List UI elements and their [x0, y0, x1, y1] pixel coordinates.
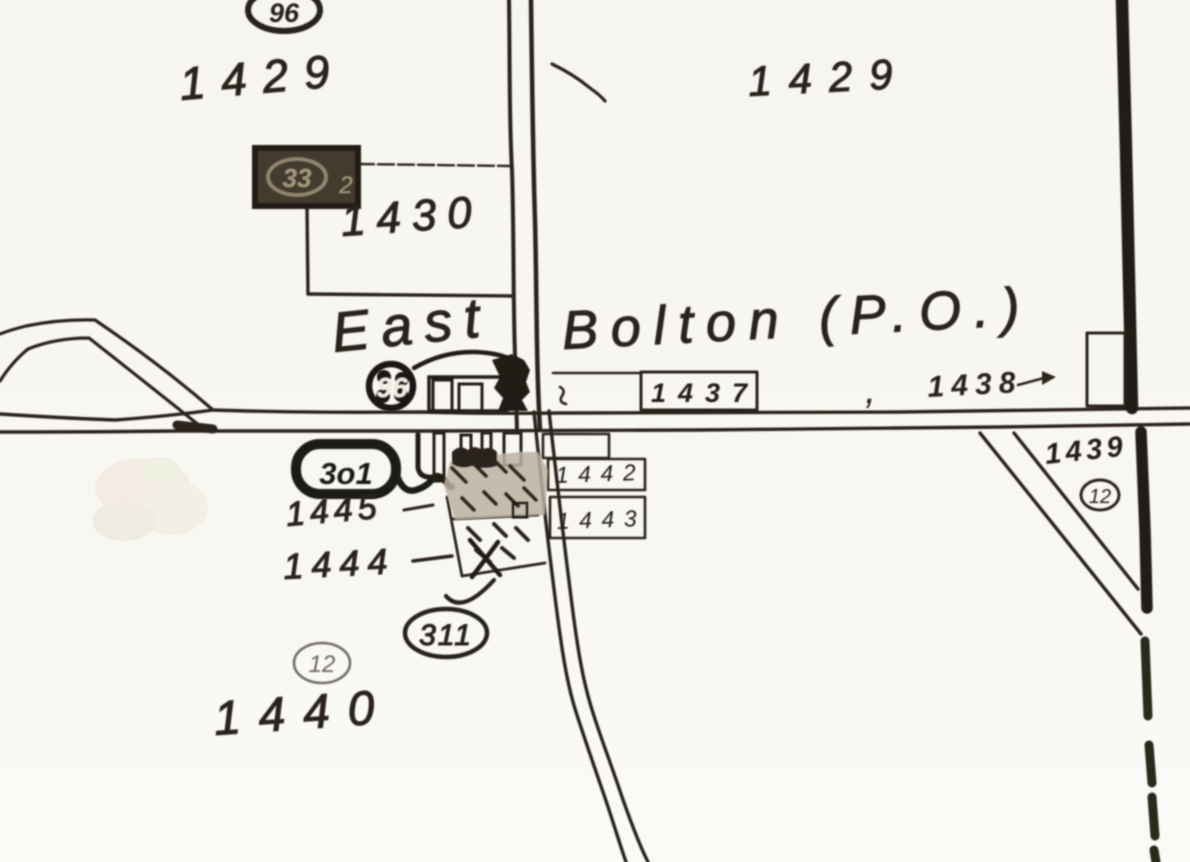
svg-text:1429: 1429 — [747, 50, 911, 105]
svg-text:1430: 1430 — [339, 187, 484, 246]
svg-text:,: , — [865, 368, 876, 412]
svg-text:96: 96 — [376, 372, 408, 403]
svg-text:12: 12 — [1089, 486, 1111, 508]
svg-text:33: 33 — [283, 163, 312, 193]
svg-text:2: 2 — [338, 172, 352, 199]
svg-text:3o1: 3o1 — [319, 456, 372, 491]
svg-text:12: 12 — [309, 651, 336, 678]
svg-text:96: 96 — [269, 0, 300, 28]
svg-text:311: 311 — [419, 619, 473, 652]
svg-text:1444: 1444 — [282, 540, 396, 587]
